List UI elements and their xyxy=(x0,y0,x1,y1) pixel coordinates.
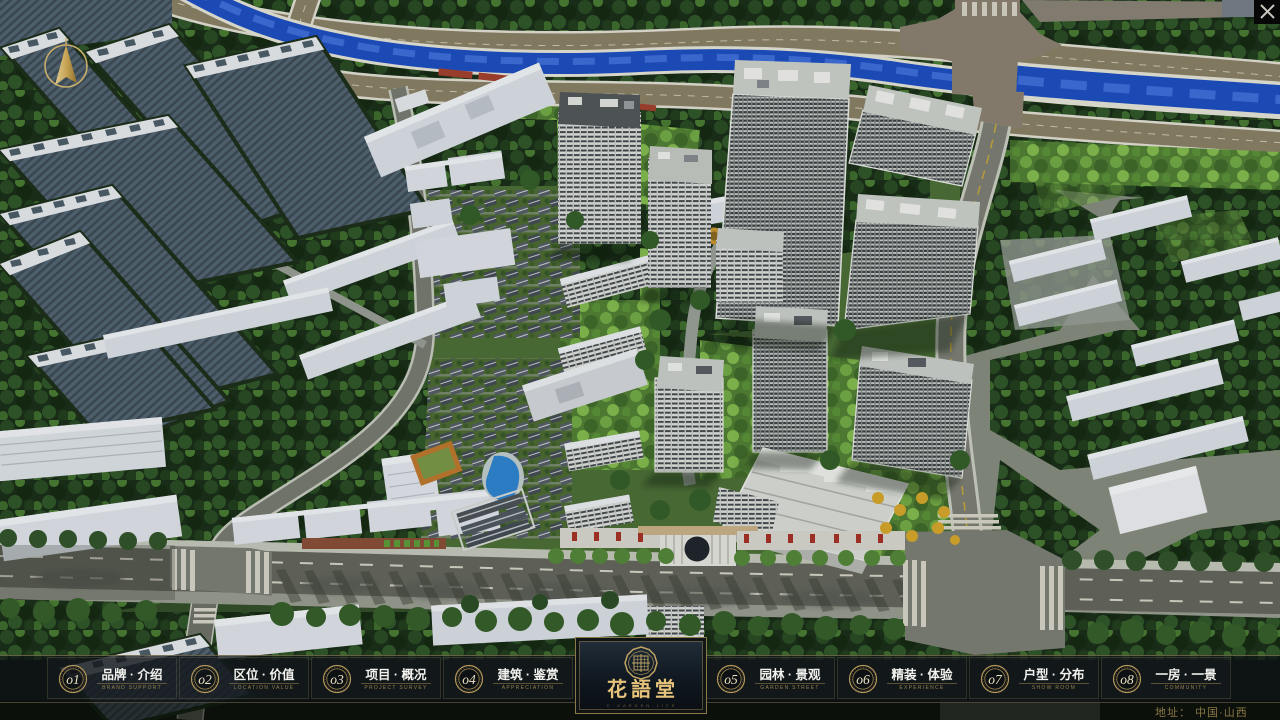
svg-text:o6: o6 xyxy=(856,672,870,687)
svg-text:C · G A R D E N · L I F E: C · G A R D E N · L I F E xyxy=(607,703,676,708)
svg-text:o5: o5 xyxy=(724,672,738,687)
svg-text:o2: o2 xyxy=(198,672,212,687)
svg-text:o8: o8 xyxy=(1120,672,1134,687)
svg-text:o3: o3 xyxy=(330,672,344,687)
svg-text:o7: o7 xyxy=(988,672,1003,687)
svg-text:o4: o4 xyxy=(462,672,476,687)
svg-text:o1: o1 xyxy=(66,672,80,687)
svg-text:花語堂: 花語堂 xyxy=(607,677,679,701)
